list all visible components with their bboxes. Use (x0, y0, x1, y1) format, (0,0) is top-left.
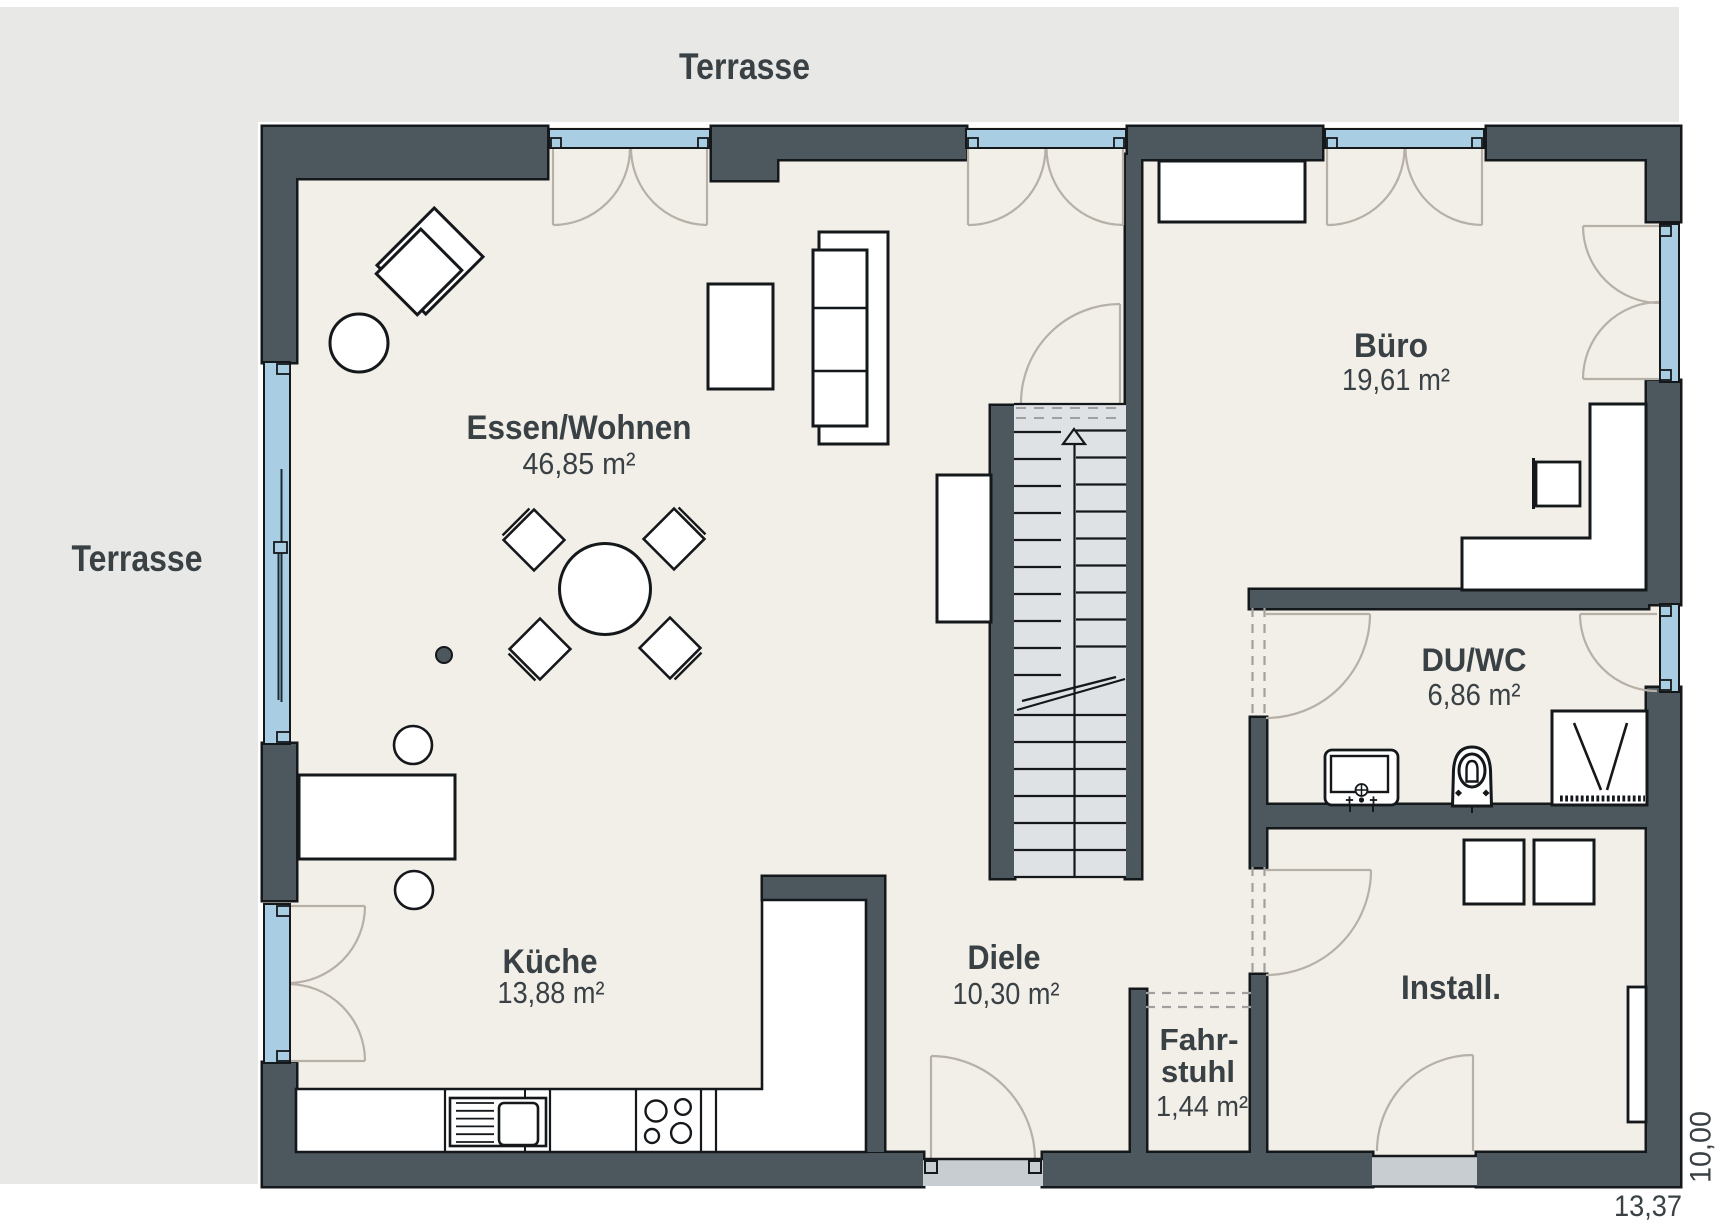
svg-text:Essen/Wohnen: Essen/Wohnen (467, 409, 692, 447)
svg-text:Terrasse: Terrasse (72, 538, 203, 579)
svg-text:19,61 m²: 19,61 m² (1342, 362, 1450, 397)
svg-text:DU/WC: DU/WC (1422, 642, 1527, 678)
svg-text:10,30 m²: 10,30 m² (953, 976, 1060, 1011)
svg-text:Fahr-: Fahr- (1160, 1022, 1239, 1057)
svg-text:Diele: Diele (968, 939, 1041, 977)
svg-text:6,86 m²: 6,86 m² (1428, 677, 1521, 712)
svg-text:13,37: 13,37 (1614, 1190, 1682, 1223)
svg-text:stuhl: stuhl (1161, 1054, 1235, 1089)
svg-text:Terrasse: Terrasse (679, 46, 810, 87)
svg-text:Büro: Büro (1354, 327, 1428, 365)
svg-text:Install.: Install. (1401, 969, 1501, 1007)
svg-text:1,44 m²: 1,44 m² (1156, 1091, 1248, 1123)
svg-text:10,00: 10,00 (1685, 1111, 1718, 1183)
svg-text:46,85 m²: 46,85 m² (523, 446, 636, 481)
svg-text:13,88 m²: 13,88 m² (498, 975, 605, 1010)
